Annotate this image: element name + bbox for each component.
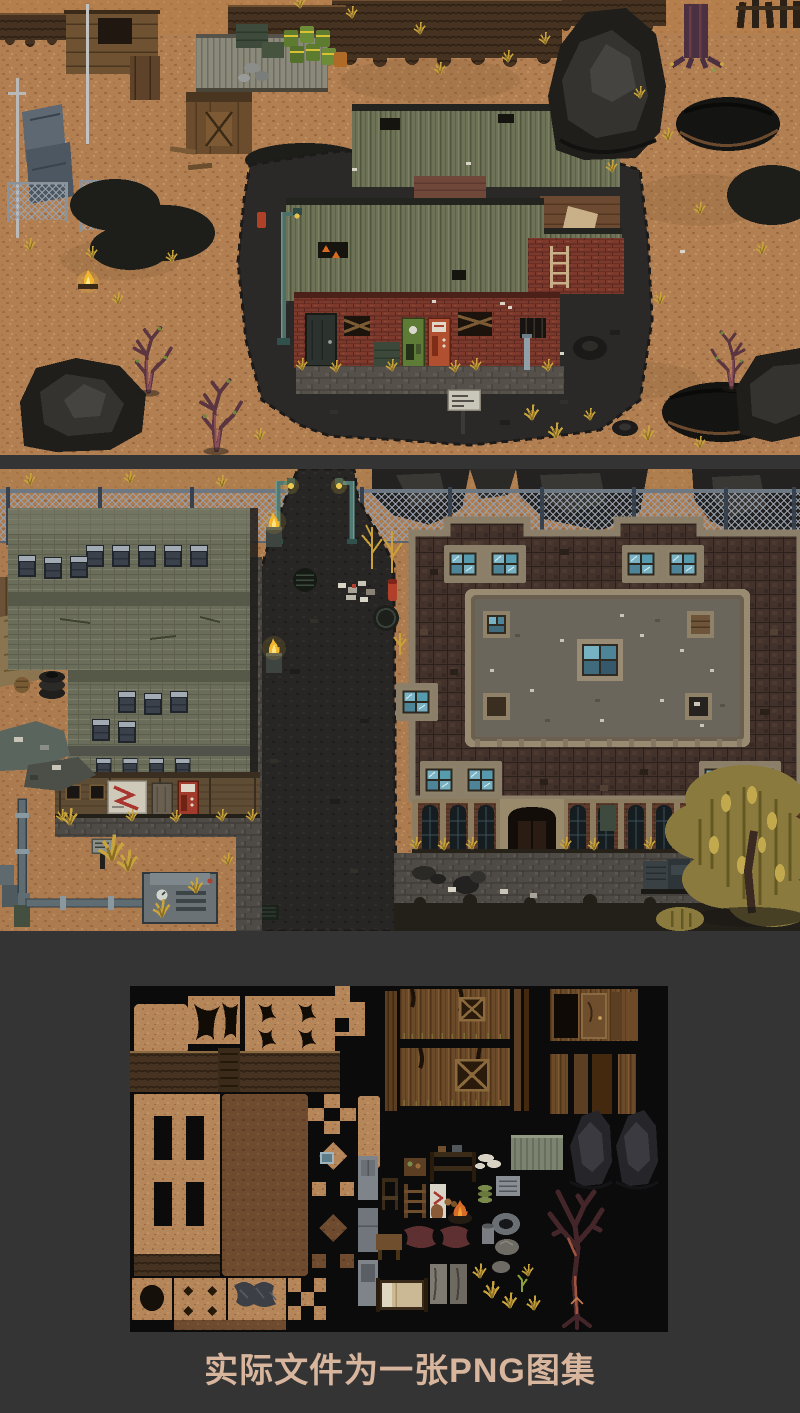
scene-shack-panel: [0, 0, 800, 455]
bed-sprite: [376, 1278, 428, 1312]
asset-pack-preview-page: { "page": { "background_color": "#343435…: [0, 0, 800, 1413]
plate-stack-sprite: [478, 1185, 492, 1203]
door-tiles: [550, 989, 638, 1041]
scene-street-art: [0, 469, 800, 931]
brick-building: [362, 520, 800, 931]
vending-machine-red: [428, 318, 450, 368]
soil-tile: [222, 1094, 308, 1276]
cliff-ridge-tiles: [130, 1048, 340, 1092]
antenna-pole: [86, 4, 89, 144]
plank-strip-tiles: [550, 1054, 636, 1114]
front-door: [306, 314, 336, 366]
checker-tiles: [308, 1094, 356, 1276]
vending-machine-red: [178, 781, 198, 817]
corrugated-tile: [511, 1135, 563, 1170]
scene-shack-art: [0, 0, 800, 455]
ring-sprite: [492, 1213, 520, 1235]
pump-machine: [143, 873, 217, 923]
trash-bin: [600, 805, 616, 831]
brick-wing: [528, 238, 624, 294]
hydrant: [257, 212, 266, 228]
banner-poster: [108, 781, 146, 813]
vending-machine-green: [402, 318, 424, 368]
tileset-atlas-panel: [130, 986, 668, 1332]
roof-courtyard: [465, 589, 750, 747]
caption: 实际文件为一张PNG图集: [0, 1348, 800, 1394]
frame-tile: [134, 1094, 220, 1276]
tileset-atlas-art: [130, 986, 668, 1332]
metal-door: [152, 783, 172, 816]
roof-tier2: [8, 606, 250, 670]
scene-street-panel: [0, 469, 800, 931]
